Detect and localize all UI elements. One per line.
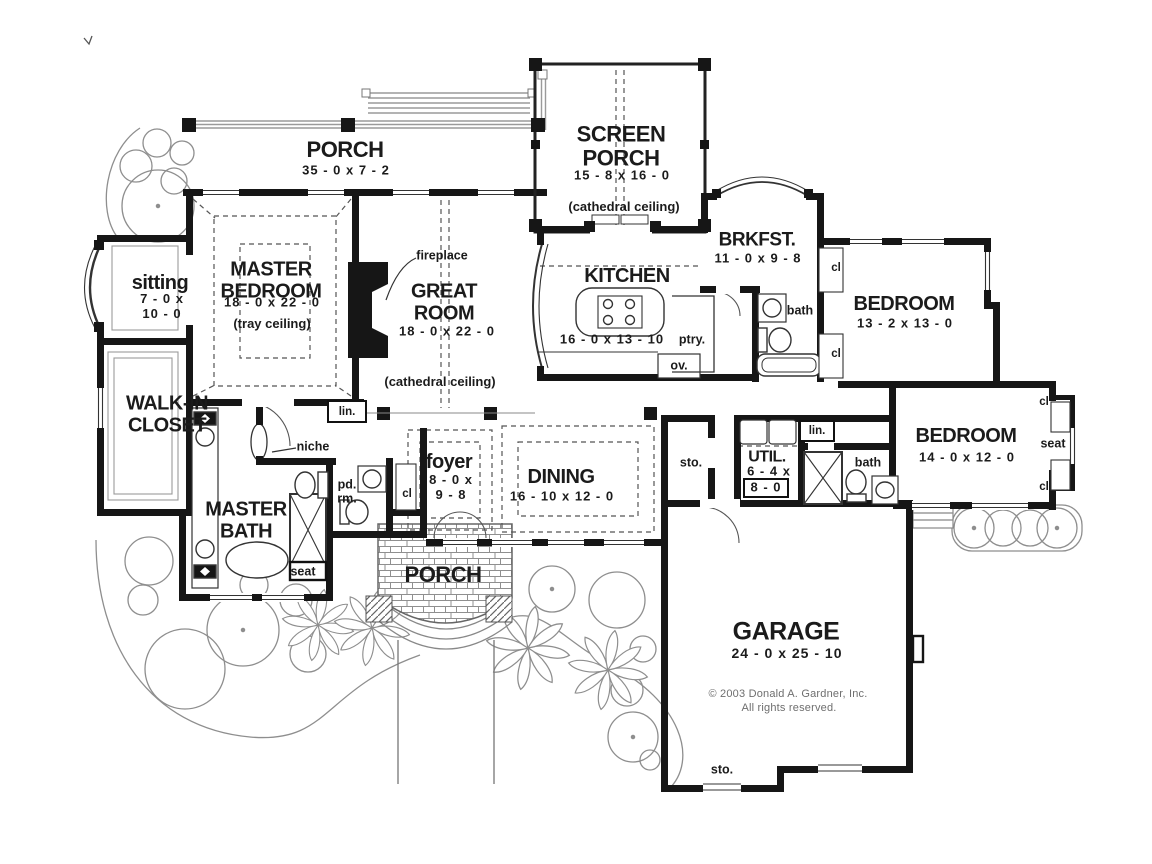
copyright-line: © 2003 Donald A. Gardner, Inc. [708,689,867,701]
palm-shrub-icon [568,630,649,711]
room-dims-kitchen: 16 - 0 x 13 - 10 [560,333,664,348]
bath1-label: bath [787,304,813,318]
closet-label: cl [1039,481,1049,493]
pantry-label: ptry. [679,333,705,347]
closet-label: cl [831,348,841,360]
linen-label: lin. [809,425,826,437]
closet-label: cl [1039,396,1049,408]
room-dims-porch-top: 35 - 0 x 7 - 2 [302,164,390,179]
room-label-great-room: GREAT ROOM [389,281,499,324]
room-label-porch-top: PORCH [307,138,384,162]
bath2-label: bath [855,456,881,470]
room-label-walk-in-closet: WALK-IN CLOSET [107,393,227,436]
planter-icon [486,596,512,622]
porch-deck-and-walks [183,70,953,784]
room-label-porch-bottom: PORCH [405,563,482,587]
room-label-bedroom2: BEDROOM [916,426,1017,448]
room-label-foyer: foyer [426,452,472,474]
room-dims-foyer: 8 - 0 x 9 - 8 [429,473,473,503]
storage-label: sto. [711,763,733,777]
niche-label: niche [297,440,330,454]
room-dims-sitting: 7 - 0 x 10 - 0 [140,292,184,322]
room-label-kitchen: KITCHEN [584,266,669,288]
room-dims-bedroom1: 13 - 2 x 13 - 0 [857,317,953,332]
closet-label: cl [402,488,412,500]
room-note-screen-porch: (cathedral ceiling) [568,200,679,214]
room-label-master-bath: MASTER BATH [191,499,301,542]
seat-label: seat [290,565,315,579]
room-dims-screen-porch: 15 - 8 x 16 - 0 [574,169,670,184]
north-tick-icon [84,36,92,44]
powder-room-label: pd. rm. [337,479,356,506]
rights-line: All rights reserved. [741,703,836,715]
front-walkway [398,640,494,784]
room-note-master-bedroom: (tray ceiling) [233,317,310,331]
room-dims-bedroom2: 14 - 0 x 12 - 0 [919,451,1015,466]
linen-label: lin. [339,406,356,418]
planter-icon [366,596,392,622]
room-dims-util-1: 6 - 4 x [747,465,791,480]
niche-leader [272,448,296,452]
storage-label: sto. [680,456,702,470]
closet-label: cl [831,262,841,274]
room-dims-master-bedroom: 18 - 0 x 22 - 0 [224,296,320,311]
floor-plan-page: PORCH 35 - 0 x 7 - 2 SCREEN PORCH 15 - 8… [0,0,1152,864]
room-label-bedroom1: BEDROOM [854,294,955,316]
room-dims-great-room: 18 - 0 x 22 - 0 [399,325,495,340]
seat-label: seat [1040,437,1065,451]
oven-label: ov. [670,359,687,373]
room-note-great-room: (cathedral ceiling) [384,375,495,389]
room-label-dining: DINING [528,467,595,489]
room-dims-brkfst: 11 - 0 x 9 - 8 [715,252,802,267]
fireplace-label: fireplace [416,249,467,263]
room-label-brkfst: BRKFST. [719,231,796,252]
room-dims-util-2: 8 - 0 [750,481,781,496]
room-label-garage: GARAGE [733,619,840,646]
room-label-screen-porch: SCREEN PORCH [554,122,689,170]
room-dims-garage: 24 - 0 x 25 - 10 [732,645,843,661]
room-dims-dining: 16 - 10 x 12 - 0 [510,490,614,505]
